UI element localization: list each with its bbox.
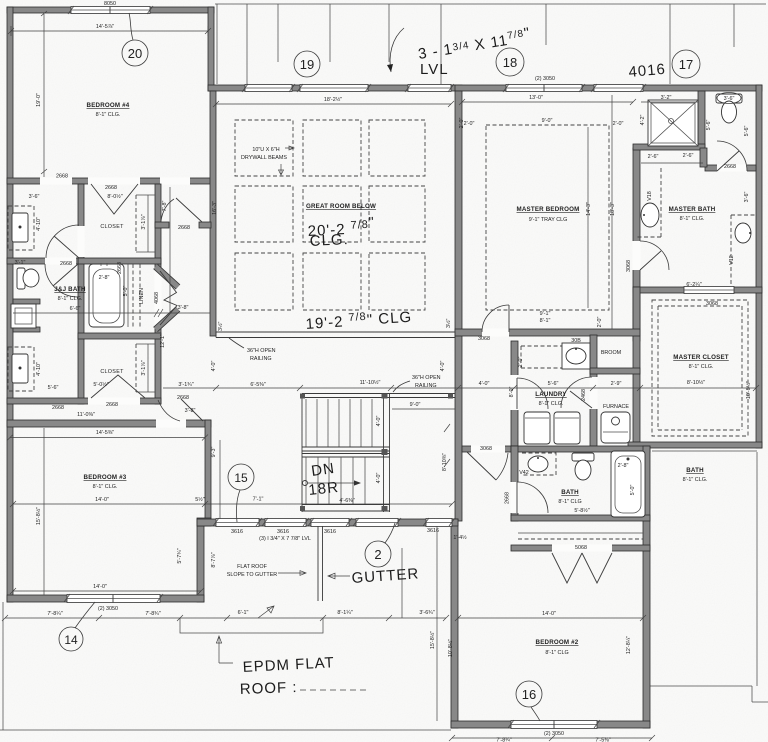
svg-text:1'-4½: 1'-4½: [453, 534, 467, 541]
svg-text:J&J BATH: J&J BATH: [54, 286, 86, 293]
svg-text:3'-6": 3'-6": [744, 192, 750, 203]
svg-text:3'-1¾": 3'-1¾": [178, 382, 193, 388]
svg-text:RAILING: RAILING: [250, 356, 272, 362]
svg-text:MASTER BEDROOM: MASTER BEDROOM: [517, 206, 580, 213]
svg-text:8'-1" CLG.: 8'-1" CLG.: [93, 484, 118, 490]
svg-text:ROOF :: ROOF :: [240, 679, 298, 698]
svg-text:2668: 2668: [56, 174, 68, 180]
svg-text:(2) 3050: (2) 3050: [535, 76, 555, 82]
svg-text:11'-10½": 11'-10½": [360, 379, 381, 386]
svg-text:8'-1" CLG.: 8'-1" CLG.: [539, 401, 564, 407]
svg-text:16'-3": 16'-3": [212, 201, 218, 215]
svg-text:FLAT ROOF: FLAT ROOF: [237, 564, 267, 570]
svg-text:3'-1": 3'-1": [15, 260, 26, 266]
svg-text:CLOSET: CLOSET: [100, 369, 124, 375]
svg-text:14'-0": 14'-0": [95, 497, 109, 503]
svg-text:5068: 5068: [575, 545, 587, 551]
svg-text:8'-10⅜": 8'-10⅜": [442, 453, 448, 471]
svg-text:5'-0½": 5'-0½": [93, 381, 108, 388]
svg-text:30B: 30B: [571, 338, 581, 344]
svg-text:V12: V12: [729, 255, 735, 265]
svg-text:2'-8": 2'-8": [99, 275, 110, 281]
svg-text:9'-1": 9'-1": [540, 311, 551, 317]
svg-text:MASTER BATH: MASTER BATH: [669, 206, 716, 213]
svg-text:2'-0": 2'-0": [597, 317, 603, 328]
svg-text:15: 15: [234, 471, 248, 485]
svg-text:8'-1" CLG: 8'-1" CLG: [545, 650, 568, 656]
svg-text:18R: 18R: [308, 479, 340, 499]
svg-text:16: 16: [522, 687, 536, 702]
svg-text:6'-2¼": 6'-2¼": [686, 282, 701, 288]
svg-text:15'-8½": 15'-8½": [429, 631, 436, 649]
svg-text:9'-3": 9'-3": [211, 447, 217, 458]
svg-text:8'-1" CLG.: 8'-1" CLG.: [683, 477, 708, 483]
svg-text:V18: V18: [647, 191, 653, 201]
svg-text:V42: V42: [519, 470, 529, 476]
svg-text:2668: 2668: [724, 164, 736, 170]
svg-text:2668: 2668: [505, 492, 511, 504]
svg-text:CLG.: CLG.: [309, 231, 349, 250]
svg-text:4'-2": 4'-2": [640, 115, 646, 126]
svg-text:4016: 4016: [628, 61, 667, 81]
svg-text:7'-8¾": 7'-8¾": [145, 611, 160, 617]
svg-text:GREAT ROOM BELOW: GREAT ROOM BELOW: [306, 203, 376, 210]
svg-text:3068: 3068: [626, 260, 632, 272]
svg-text:4'-10": 4'-10": [36, 362, 42, 376]
svg-text:5'-6": 5'-6": [548, 381, 559, 387]
svg-text:MASTER CLOSET: MASTER CLOSET: [673, 354, 729, 361]
svg-text:10'-5½": 10'-5½": [745, 381, 752, 399]
svg-text:7'-8": 7'-8": [162, 201, 168, 212]
svg-text:6'-1": 6'-1": [238, 610, 249, 616]
svg-text:3'-8": 3'-8": [185, 408, 196, 414]
svg-text:3½": 3½": [445, 319, 452, 328]
svg-text:9'-0": 9'-0": [542, 118, 553, 124]
svg-text:2'-0": 2'-0": [613, 121, 624, 127]
svg-text:2468: 2468: [581, 389, 587, 401]
svg-text:2'-6": 2'-6": [648, 154, 659, 160]
svg-text:DRYWALL BEAMS: DRYWALL BEAMS: [241, 155, 287, 161]
svg-text:36"H OPEN: 36"H OPEN: [412, 375, 441, 381]
svg-text:14'-0": 14'-0": [542, 611, 556, 617]
svg-text:10'-8½": 10'-8½": [447, 639, 454, 657]
svg-text:4'-0": 4'-0": [479, 381, 490, 387]
svg-text:3616: 3616: [324, 529, 336, 535]
svg-text:8'-10½": 8'-10½": [687, 379, 705, 386]
svg-text:3616: 3616: [277, 529, 289, 535]
svg-text:2668: 2668: [117, 262, 123, 274]
svg-text:5'-7¾": 5'-7¾": [177, 548, 183, 563]
svg-text:8'-1¼": 8'-1¼": [337, 610, 352, 616]
svg-text:18'-3": 18'-3": [610, 202, 616, 216]
svg-text:3'-1⅞": 3'-1⅞": [141, 214, 147, 229]
svg-text:2'-0": 2'-0": [518, 357, 524, 368]
svg-text:3'-1⅞": 3'-1⅞": [141, 360, 147, 375]
svg-text:3068: 3068: [706, 301, 718, 307]
svg-text:DN: DN: [310, 460, 336, 480]
svg-text:2'-0": 2'-0": [464, 121, 475, 127]
svg-text:BEDROOM #3: BEDROOM #3: [84, 474, 127, 481]
svg-text:4'-0": 4'-0": [440, 361, 446, 372]
svg-text:12'-8¼": 12'-8¼": [626, 636, 632, 654]
svg-text:18: 18: [503, 55, 517, 70]
svg-text:2: 2: [374, 547, 381, 562]
svg-text:5'-0": 5'-0": [630, 485, 636, 496]
svg-text:14: 14: [64, 633, 78, 647]
svg-text:14'-3": 14'-3": [586, 202, 592, 216]
svg-text:3616: 3616: [231, 529, 243, 535]
svg-text:3616: 3616: [427, 528, 439, 534]
svg-text:5'-6": 5'-6": [706, 120, 712, 131]
svg-text:8'-0": 8'-0": [509, 387, 515, 398]
svg-text:BEDROOM #4: BEDROOM #4: [87, 102, 130, 109]
svg-text:13'-0": 13'-0": [529, 95, 543, 101]
svg-text:5½": 5½": [195, 496, 204, 503]
svg-text:3'-6": 3'-6": [29, 194, 40, 200]
svg-text:2'-9": 2'-9": [611, 381, 622, 387]
svg-text:6'-6": 6'-6": [70, 306, 81, 312]
svg-text:2'-0": 2'-0": [459, 118, 465, 129]
svg-text:5'-0": 5'-0": [123, 286, 129, 297]
svg-text:4'-6⅜": 4'-6⅜": [339, 498, 354, 504]
svg-text:9'-0": 9'-0": [410, 402, 421, 408]
svg-text:17: 17: [679, 57, 693, 72]
svg-text:19'-0": 19'-0": [36, 93, 42, 107]
svg-text:3'-6¾": 3'-6¾": [419, 610, 434, 616]
svg-text:3'-6": 3'-6": [724, 96, 735, 102]
svg-text:2668: 2668: [105, 185, 117, 191]
svg-text:2668: 2668: [52, 405, 64, 411]
svg-text:BEDROOM #2: BEDROOM #2: [536, 639, 579, 646]
svg-text:5'-8½": 5'-8½": [574, 507, 589, 514]
svg-text:3068: 3068: [480, 446, 492, 452]
svg-text:36"H OPEN: 36"H OPEN: [247, 348, 276, 354]
svg-text:4'-0": 4'-0": [376, 473, 382, 484]
svg-text:BATH: BATH: [561, 489, 579, 496]
svg-text:2668: 2668: [177, 395, 189, 401]
svg-text:8'-1" CLG: 8'-1" CLG: [558, 499, 581, 505]
svg-text:8'-1": 8'-1": [540, 318, 551, 324]
svg-text:18'-2½": 18'-2½": [324, 96, 342, 103]
svg-text:2668: 2668: [178, 225, 190, 231]
svg-text:3½": 3½": [217, 322, 224, 331]
svg-text:7'-8¼": 7'-8¼": [47, 611, 62, 617]
svg-text:11'-0⅜": 11'-0⅜": [77, 412, 95, 418]
svg-text:5'-6": 5'-6": [48, 385, 59, 391]
svg-text:2'-8": 2'-8": [618, 463, 629, 469]
svg-text:8'-1" CLG.: 8'-1" CLG.: [96, 112, 121, 118]
svg-text:12'-1": 12'-1": [160, 334, 166, 348]
svg-text:10"U X 6"H: 10"U X 6"H: [252, 147, 279, 153]
svg-text:8'-1" CLG.: 8'-1" CLG.: [58, 296, 83, 302]
svg-text:8'-7⅞": 8'-7⅞": [211, 552, 217, 567]
svg-text:LAUNDRY: LAUNDRY: [535, 391, 567, 398]
svg-text:7'-8¼": 7'-8¼": [496, 738, 511, 742]
svg-text:2668: 2668: [106, 402, 118, 408]
svg-text:3068: 3068: [478, 336, 490, 342]
svg-text:(2) 3050: (2) 3050: [98, 606, 118, 612]
svg-text:5'-6": 5'-6": [744, 126, 750, 137]
svg-text:14'-5⅜": 14'-5⅜": [96, 430, 114, 436]
svg-text:2668: 2668: [60, 261, 72, 267]
svg-text:BROOM: BROOM: [601, 350, 622, 356]
svg-text:7'-1": 7'-1": [253, 497, 264, 503]
svg-text:LINEN: LINEN: [139, 288, 145, 304]
svg-text:3'-2": 3'-2": [661, 95, 672, 101]
svg-text:14'-0": 14'-0": [93, 584, 107, 590]
svg-text:2'-6": 2'-6": [683, 153, 694, 159]
svg-text:4068: 4068: [154, 292, 160, 304]
svg-text:4'-0": 4'-0": [376, 416, 382, 427]
svg-text:9'-1" TRAY CLG: 9'-1" TRAY CLG: [529, 217, 568, 223]
svg-text:(3) I 3/4" X 7 7/8" LVL: (3) I 3/4" X 7 7/8" LVL: [259, 536, 311, 542]
svg-text:14'-5⅞": 14'-5⅞": [96, 24, 114, 30]
svg-text:8'-1" CLG.: 8'-1" CLG.: [680, 216, 705, 222]
svg-text:SLOPE TO GUTTER: SLOPE TO GUTTER: [227, 572, 278, 578]
svg-text:4'-10": 4'-10": [36, 217, 42, 231]
svg-text:CLOSET: CLOSET: [100, 224, 124, 230]
svg-text:15'-8½": 15'-8½": [35, 507, 42, 525]
svg-text:FURNACE: FURNACE: [603, 404, 629, 410]
svg-text:6'-5⅜": 6'-5⅜": [250, 382, 265, 388]
svg-text:20: 20: [128, 46, 142, 61]
svg-text:8'-1" CLG.: 8'-1" CLG.: [689, 364, 714, 370]
svg-text:4'-0": 4'-0": [211, 361, 217, 372]
svg-text:3'-8": 3'-8": [178, 305, 189, 311]
svg-text:8'-0½": 8'-0½": [107, 193, 122, 200]
svg-text:7'-5⅜": 7'-5⅜": [595, 738, 610, 742]
svg-text:19: 19: [300, 57, 314, 72]
svg-text:LVL: LVL: [420, 61, 449, 78]
svg-text:BATH: BATH: [686, 467, 704, 474]
